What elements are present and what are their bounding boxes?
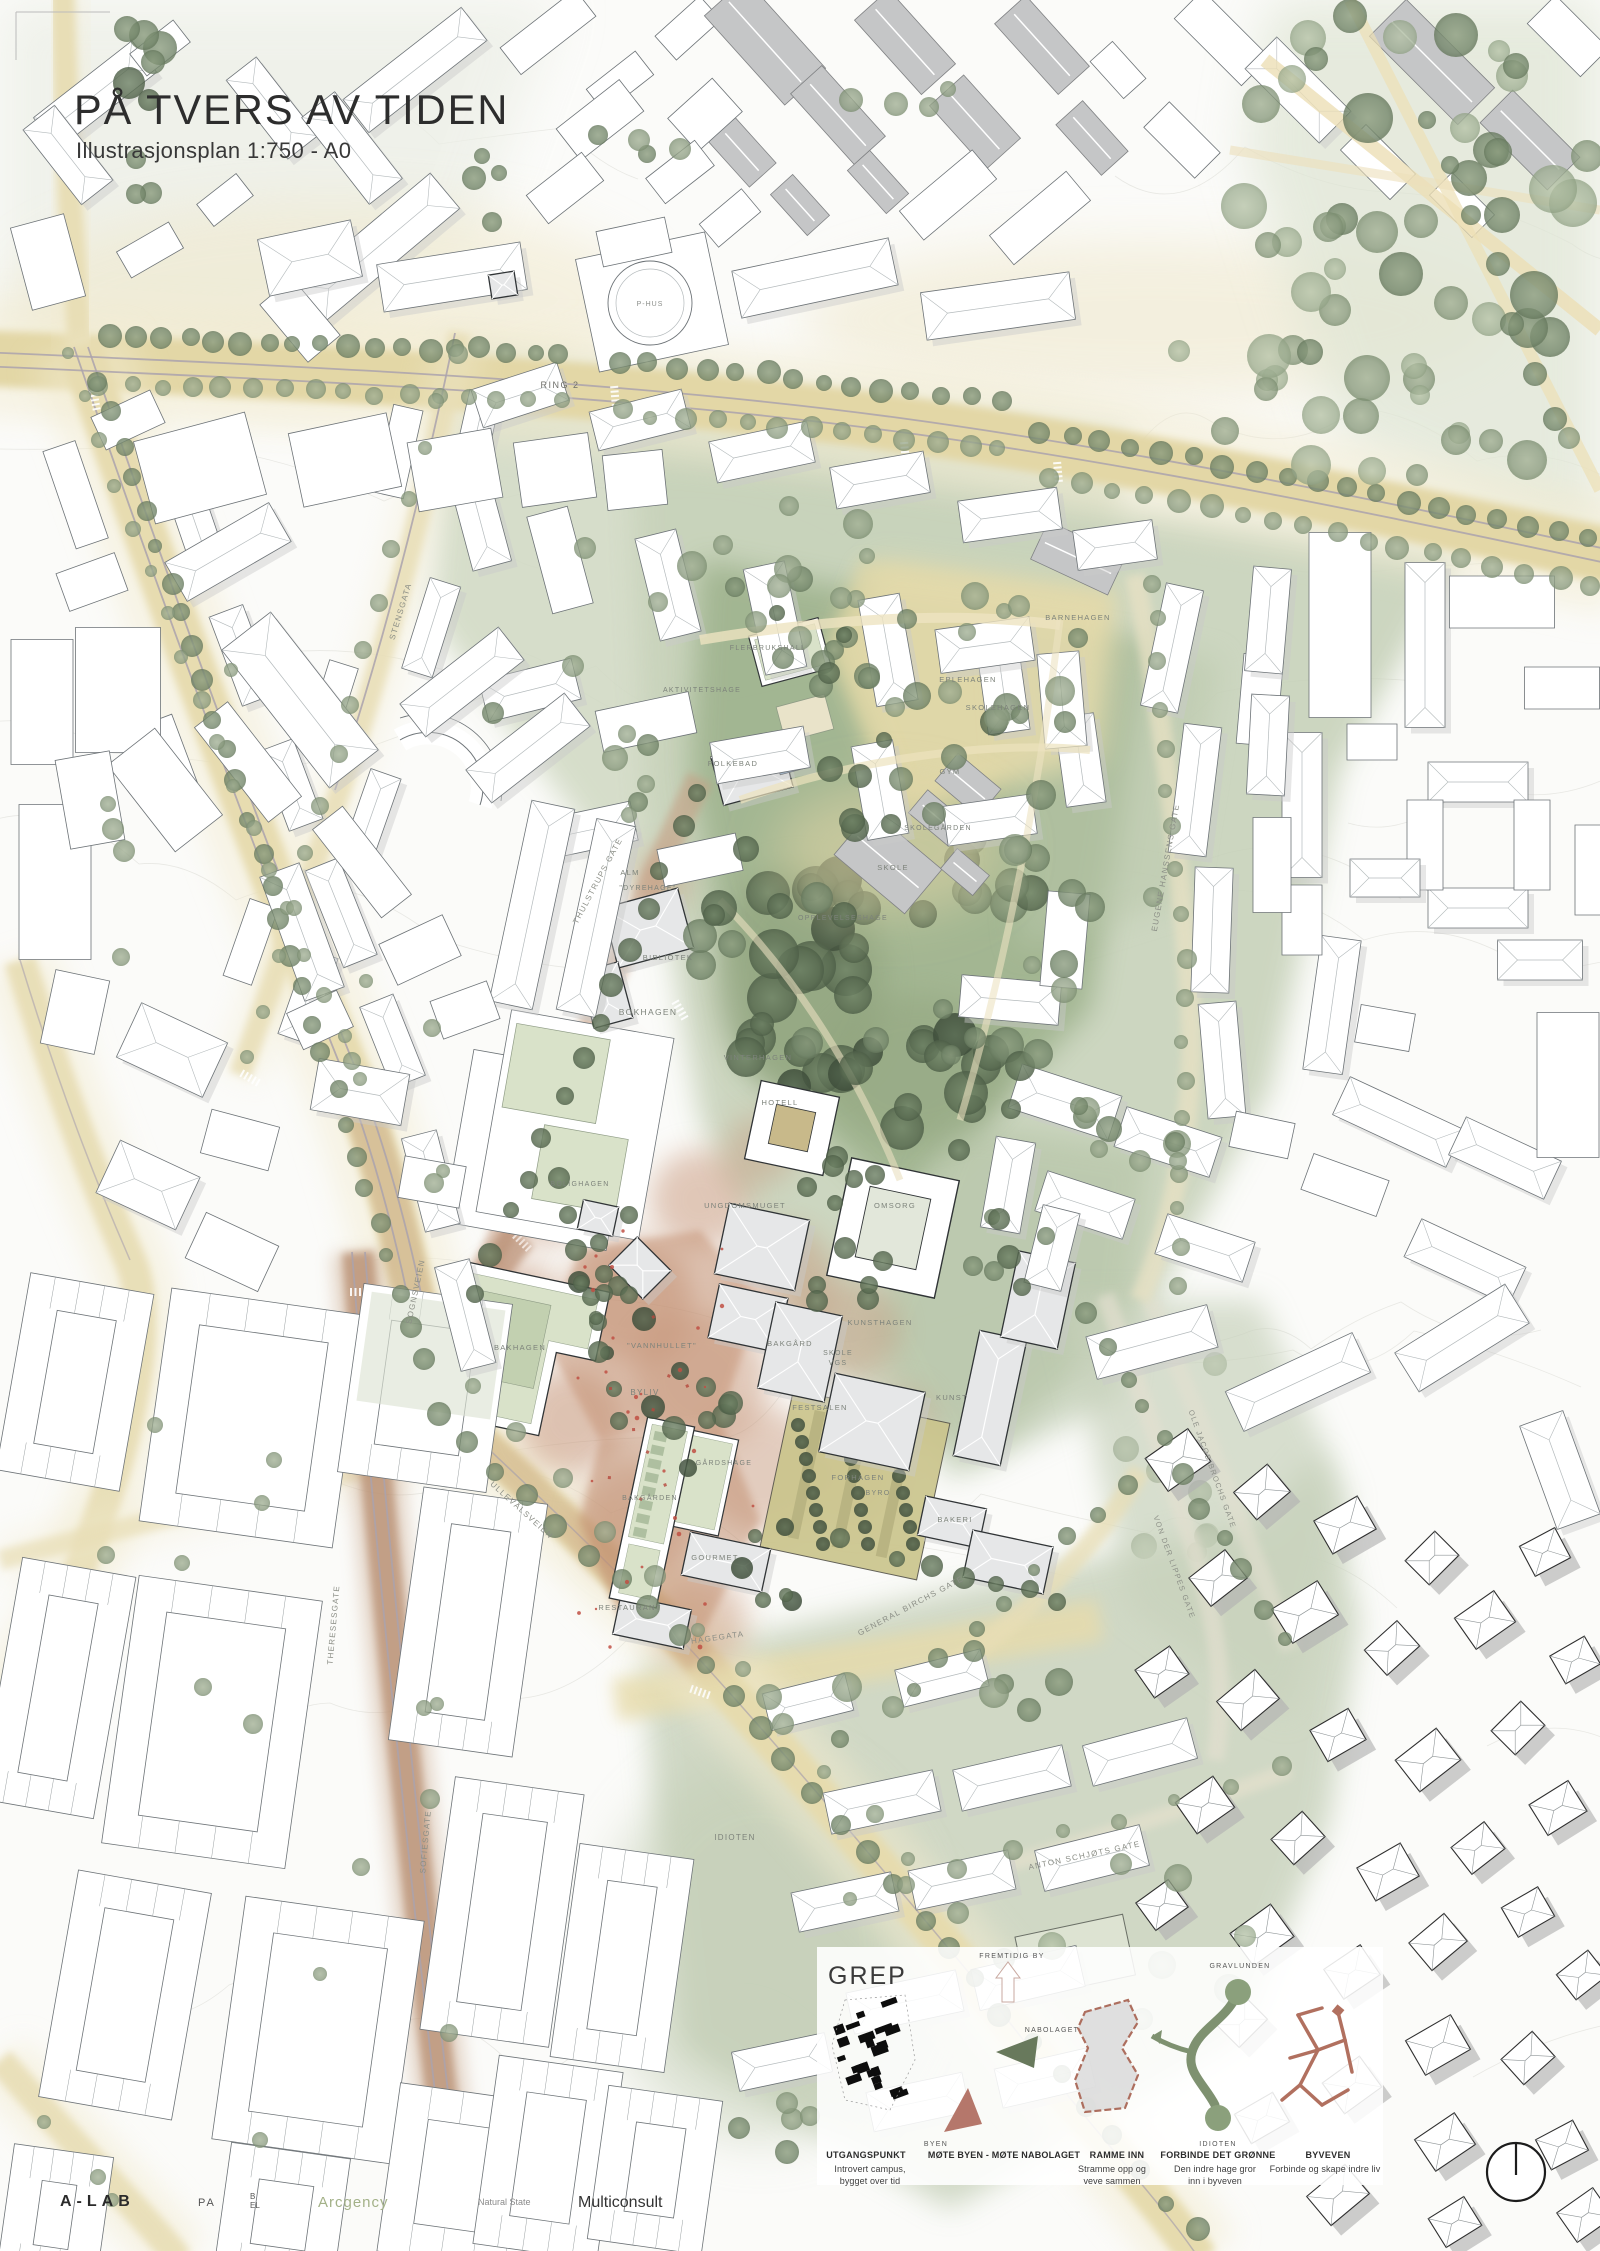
- svg-text:BYVEVEN: BYVEVEN: [1305, 2150, 1350, 2160]
- svg-text:VINTERHAGEN: VINTERHAGEN: [724, 1053, 792, 1062]
- svg-text:B: B: [250, 2192, 255, 2201]
- svg-text:P-HUS: P-HUS: [637, 301, 664, 308]
- svg-text:Stramme opp og: Stramme opp og: [1078, 2164, 1146, 2174]
- svg-text:Den indre hage gror: Den indre hage gror: [1174, 2164, 1256, 2174]
- svg-text:GOURMET: GOURMET: [691, 1553, 738, 1562]
- svg-text:inn i byveven: inn i byveven: [1188, 2176, 1242, 2186]
- svg-text:A-LAB: A-LAB: [60, 2193, 135, 2210]
- svg-text:PÅ TVERS AV TIDEN: PÅ TVERS AV TIDEN: [74, 86, 509, 133]
- svg-text:Arcgency: Arcgency: [318, 2194, 389, 2211]
- svg-text:UTGANGSPUNKT: UTGANGSPUNKT: [826, 2150, 906, 2160]
- svg-text:FESTSALEN: FESTSALEN: [792, 1403, 847, 1412]
- svg-text:Forbinde og skape indre liv: Forbinde og skape indre liv: [1270, 2164, 1381, 2174]
- svg-text:EPLEHAGEN: EPLEHAGEN: [939, 675, 997, 684]
- svg-text:FOLKEBAD: FOLKEBAD: [708, 759, 758, 768]
- svg-text:FLERBRUKSHALL: FLERBRUKSHALL: [730, 645, 806, 652]
- svg-text:EL: EL: [250, 2201, 260, 2210]
- svg-text:RING 2: RING 2: [540, 380, 579, 390]
- svg-text:BAKERI: BAKERI: [937, 1515, 972, 1524]
- svg-text:KUNSTHAGEN: KUNSTHAGEN: [847, 1318, 912, 1327]
- svg-text:BARNEHAGEN: BARNEHAGEN: [1045, 613, 1111, 622]
- svg-text:Multiconsult: Multiconsult: [578, 2194, 663, 2211]
- svg-text:BOKHAGEN: BOKHAGEN: [619, 1007, 678, 1017]
- svg-text:bygget over tid: bygget over tid: [840, 2176, 901, 2186]
- svg-text:RESTAURANT: RESTAURANT: [598, 1603, 661, 1612]
- svg-text:HOTELL: HOTELL: [762, 1098, 799, 1107]
- svg-text:BAKGÅRD: BAKGÅRD: [767, 1339, 813, 1348]
- svg-text:FREMTIDIG BY: FREMTIDIG BY: [979, 1953, 1044, 1960]
- svg-text:BOLIGHAGEN: BOLIGHAGEN: [550, 1181, 609, 1188]
- svg-text:"VANNHULLET": "VANNHULLET": [627, 1341, 697, 1350]
- svg-text:BYLIV: BYLIV: [630, 1388, 659, 1397]
- svg-text:BIBLIOTEK: BIBLIOTEK: [643, 953, 693, 962]
- svg-text:BYEN: BYEN: [924, 2141, 948, 2148]
- svg-text:GREP: GREP: [828, 1962, 907, 1990]
- svg-text:NABOLAGET: NABOLAGET: [1025, 2027, 1080, 2034]
- svg-text:SKOLEGÅRDEN: SKOLEGÅRDEN: [904, 823, 972, 832]
- svg-text:FORHAGEN: FORHAGEN: [832, 1473, 885, 1482]
- svg-text:IDIOTEN: IDIOTEN: [1199, 2141, 1237, 2148]
- svg-text:SKOLEHAGEN: SKOLEHAGEN: [966, 703, 1031, 712]
- svg-text:Natural State: Natural State: [478, 2197, 531, 2207]
- svg-text:GRAVLUNDEN: GRAVLUNDEN: [1209, 1963, 1270, 1970]
- svg-text:IDIOTEN: IDIOTEN: [714, 1833, 756, 1842]
- svg-text:PA: PA: [198, 2197, 216, 2209]
- svg-text:ALM: ALM: [620, 868, 639, 877]
- svg-text:SKOLE: SKOLE: [877, 863, 909, 872]
- svg-text:UNGDOMSMUGET: UNGDOMSMUGET: [704, 1201, 786, 1210]
- svg-text:MØTE BYEN - MØTE NABOLAGET: MØTE BYEN - MØTE NABOLAGET: [928, 2150, 1080, 2160]
- svg-text:"DYREHAGE": "DYREHAGE": [619, 885, 676, 892]
- svg-text:OPPLEVELSESHAGE: OPPLEVELSESHAGE: [798, 915, 888, 922]
- svg-text:GYM: GYM: [940, 767, 961, 776]
- svg-text:RAMME INN: RAMME INN: [1090, 2150, 1145, 2160]
- svg-text:Introvert campus,: Introvert campus,: [834, 2164, 905, 2174]
- svg-text:SKOLE: SKOLE: [823, 1350, 853, 1357]
- svg-text:VGS: VGS: [829, 1360, 848, 1367]
- svg-text:BYRO: BYRO: [865, 1490, 890, 1497]
- svg-text:OMSORG: OMSORG: [874, 1201, 916, 1210]
- svg-text:AKTIVITETSHAGE: AKTIVITETSHAGE: [663, 687, 741, 694]
- svg-text:KUNST: KUNST: [936, 1393, 968, 1402]
- svg-text:veve sammen: veve sammen: [1083, 2176, 1140, 2186]
- svg-text:FORBINDE DET GRØNNE: FORBINDE DET GRØNNE: [1160, 2150, 1275, 2160]
- svg-text:Illustrasjonsplan 1:750 - A0: Illustrasjonsplan 1:750 - A0: [76, 138, 351, 163]
- svg-text:BAKGÅRDEN: BAKGÅRDEN: [622, 1493, 678, 1502]
- svg-text:GÅRDSHAGE: GÅRDSHAGE: [696, 1458, 752, 1467]
- svg-text:BAKHAGEN: BAKHAGEN: [494, 1343, 546, 1352]
